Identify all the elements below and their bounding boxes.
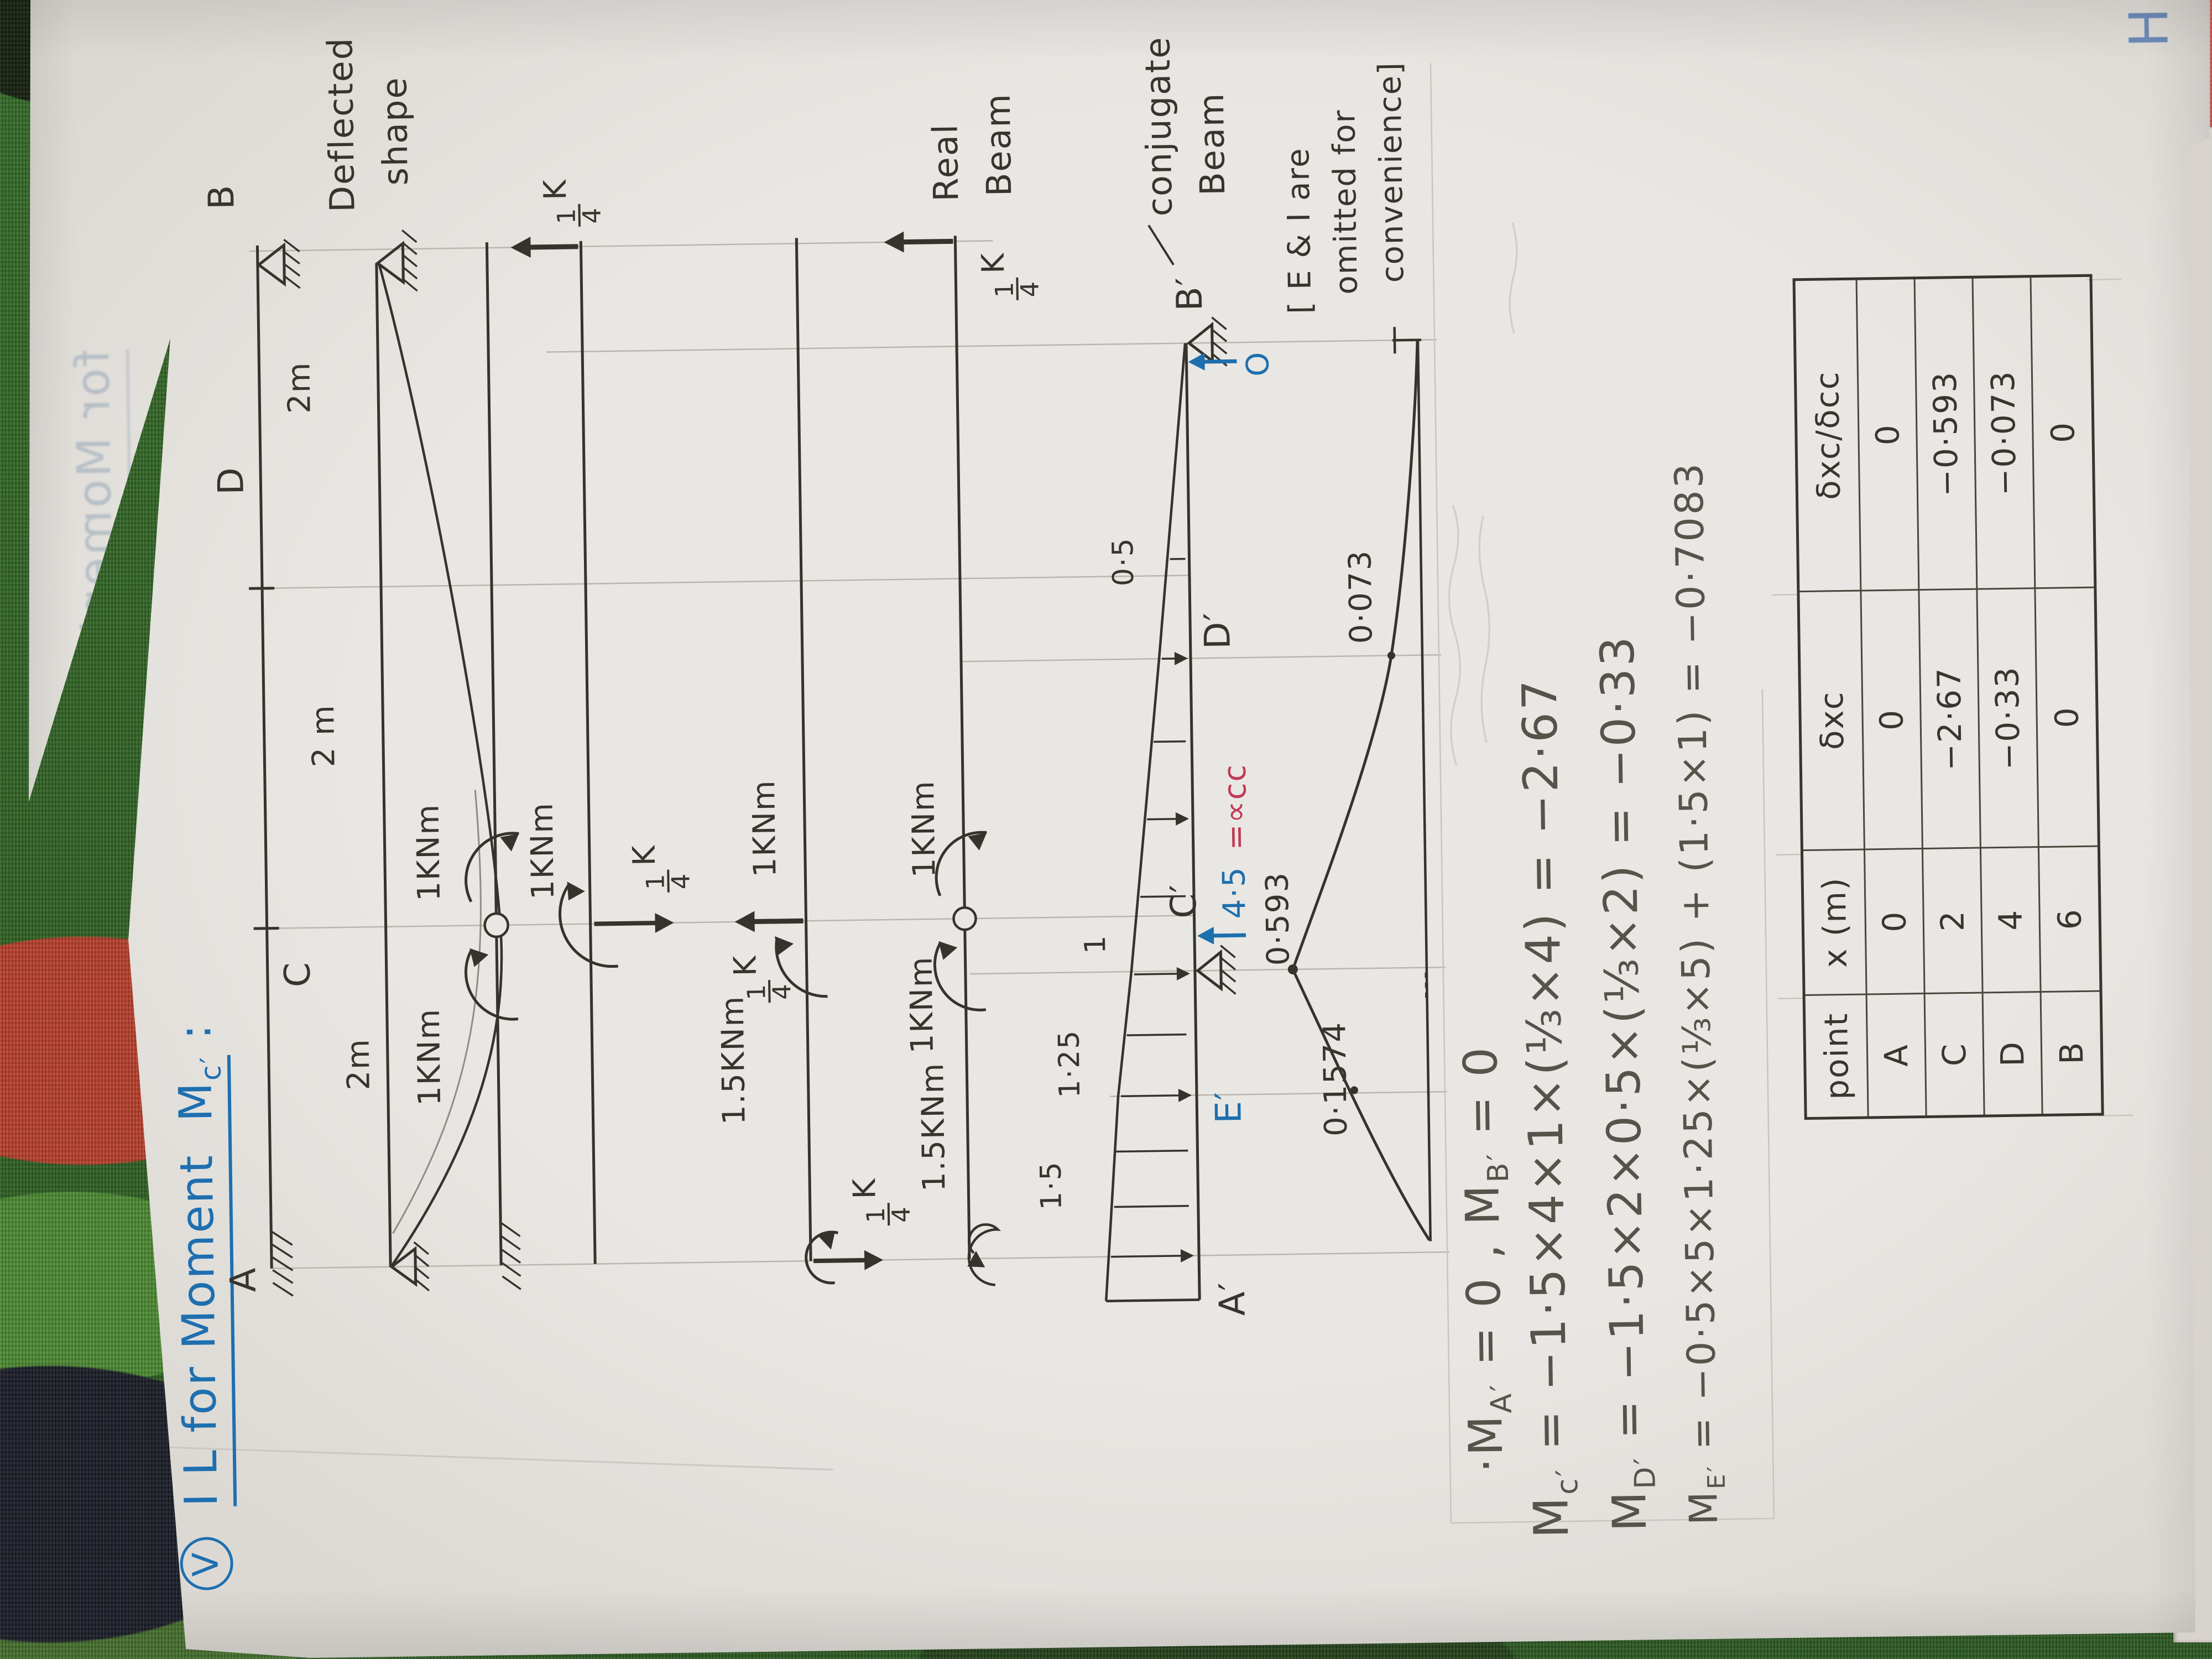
table-row-b-dxc: 0 <box>2036 587 2098 846</box>
moment-label-1knm-right: 1KNm <box>410 803 447 901</box>
table-row-c-point: C <box>1926 992 1985 1115</box>
formula-ma-mb: ·MA′ = 0 , MB′ = 0 <box>1453 1045 1520 1473</box>
table-row-c-ratio: −0·593 <box>1916 279 1978 589</box>
table-row-b-ratio: 0 <box>2032 277 2094 587</box>
load-value-0p5: 0·5 <box>1107 537 1140 587</box>
conjugate-caption-1: conjugate <box>1137 36 1180 217</box>
table-row-c-dxc: −2·67 <box>1919 588 1981 848</box>
table-row-a-point: A <box>1867 993 1927 1116</box>
ei-note-line-2: omitted for <box>1326 109 1365 295</box>
table-row-d-ratio: −0·073 <box>1974 278 2036 588</box>
moment-label-1knm-left: 1KNm <box>411 1008 448 1107</box>
deflected-shape-caption-2: shape <box>374 76 416 186</box>
deflected-shape-caption-1: Deflected <box>320 36 362 212</box>
moment-label-1p5knm: 1.5KNm <box>714 995 752 1125</box>
il-value-at-d: 0·073 <box>1342 549 1379 644</box>
reaction-4p5-value: 4·5 <box>1216 866 1253 919</box>
reaction-quarter-k-down-c: 14K <box>627 844 693 893</box>
notebook-page: for Moment V I L for Moment Mc′ : A C D … <box>0 0 2212 1659</box>
table-row-a-dxc: 0 <box>1861 589 1923 848</box>
table-row-c-x: 2 <box>1923 847 1984 993</box>
beam-label-c: C <box>277 961 319 988</box>
formula-md: MD′ = −1·5×2×0·5×(⅓×2) = −0·33 <box>1590 634 1662 1532</box>
results-table: point x (m) δxc δxc/δcc A 0 0 0 C 2 −2·6… <box>1793 274 2104 1120</box>
beam-label-b: B <box>201 184 243 210</box>
photo-of-handwritten-notes: for Moment V I L for Moment Mc′ : A C D … <box>0 0 2212 1659</box>
real-beam-moment-1p5knm: 1.5KNm <box>915 1062 952 1192</box>
table-row-a-ratio: 0 <box>1858 279 1920 589</box>
table-header-point: point <box>1806 993 1869 1117</box>
title-bullet-circled-v: V <box>180 1537 233 1590</box>
formula-mc: Mc′ = −1·5×4×1×(⅓×4) = −2·67 <box>1512 677 1585 1539</box>
table-row-d-dxc: −0·33 <box>1978 587 2039 847</box>
span-label-ac: 2m <box>340 1038 377 1091</box>
table-row-b-x: 6 <box>2039 846 2100 991</box>
table-header-dxc: δxc <box>1799 590 1865 850</box>
reaction-quarter-k-up-c: 14K <box>727 954 794 1003</box>
real-beam-moment-1knm-c: 1KNm <box>905 780 942 878</box>
beam-label-a: A <box>223 1266 264 1292</box>
ei-note-line-1: [ E & I are <box>1280 147 1318 314</box>
real-beam-caption-2: Beam <box>978 93 1020 197</box>
load-value-1: 1 <box>1079 934 1112 954</box>
conjugate-label-e: E′ <box>1208 1091 1250 1124</box>
reaction-quarter-k-down-a: 14K <box>847 1177 914 1226</box>
beam-label-d: D <box>211 466 252 495</box>
table-row-d-point: D <box>1984 991 2043 1114</box>
conjugate-label-a: A′ <box>1212 1281 1254 1316</box>
moment-label-1knm-fig5: 1KNm <box>746 779 783 878</box>
span-label-cd: 2 m <box>305 704 342 768</box>
span-label-db: 2m <box>281 361 317 414</box>
real-beam-moment-1knm-a: 1KNm <box>903 956 940 1054</box>
ei-note-line-3: convenience] <box>1372 61 1411 283</box>
conjugate-label-d: D′ <box>1197 611 1239 649</box>
table-row-d-x: 4 <box>1981 846 2042 992</box>
page-title: V I L for Moment Mc′ : <box>169 1022 234 1591</box>
real-beam-caption-1: Real <box>925 123 966 202</box>
table-row-b-point: B <box>2042 990 2101 1114</box>
moment-label-1knm-c: 1KNm <box>524 802 561 900</box>
table-row-a-x: 0 <box>1865 848 1926 993</box>
conjugate-label-c: C′ <box>1164 883 1205 919</box>
corner-ink-mark: H <box>2118 7 2180 48</box>
conjugate-caption-2: Beam <box>1191 92 1233 196</box>
load-value-1p5: 1·5 <box>1035 1161 1068 1211</box>
conjugate-label-b: B′ <box>1169 276 1211 311</box>
table-header-dxc-dcc: δxc/δcc <box>1796 280 1862 591</box>
il-value-at-e: 0·1574 <box>1317 1021 1354 1136</box>
reaction-zero-at-b: O <box>1240 351 1276 377</box>
reaction-quarter-k-up-b: 14K <box>538 178 604 227</box>
alpha-cc-annotation: =∝cc <box>1217 763 1254 850</box>
reaction-quarter-k-up-b-real: 14K <box>975 252 1042 301</box>
table-header-x: x (m) <box>1803 848 1867 994</box>
il-value-at-c: 0·593 <box>1259 872 1296 966</box>
load-value-1p25: 1·25 <box>1052 1029 1087 1098</box>
title-colon: : <box>169 1022 221 1040</box>
page-content-rotated: for Moment V I L for Moment Mc′ : A C D … <box>17 3 2195 1626</box>
